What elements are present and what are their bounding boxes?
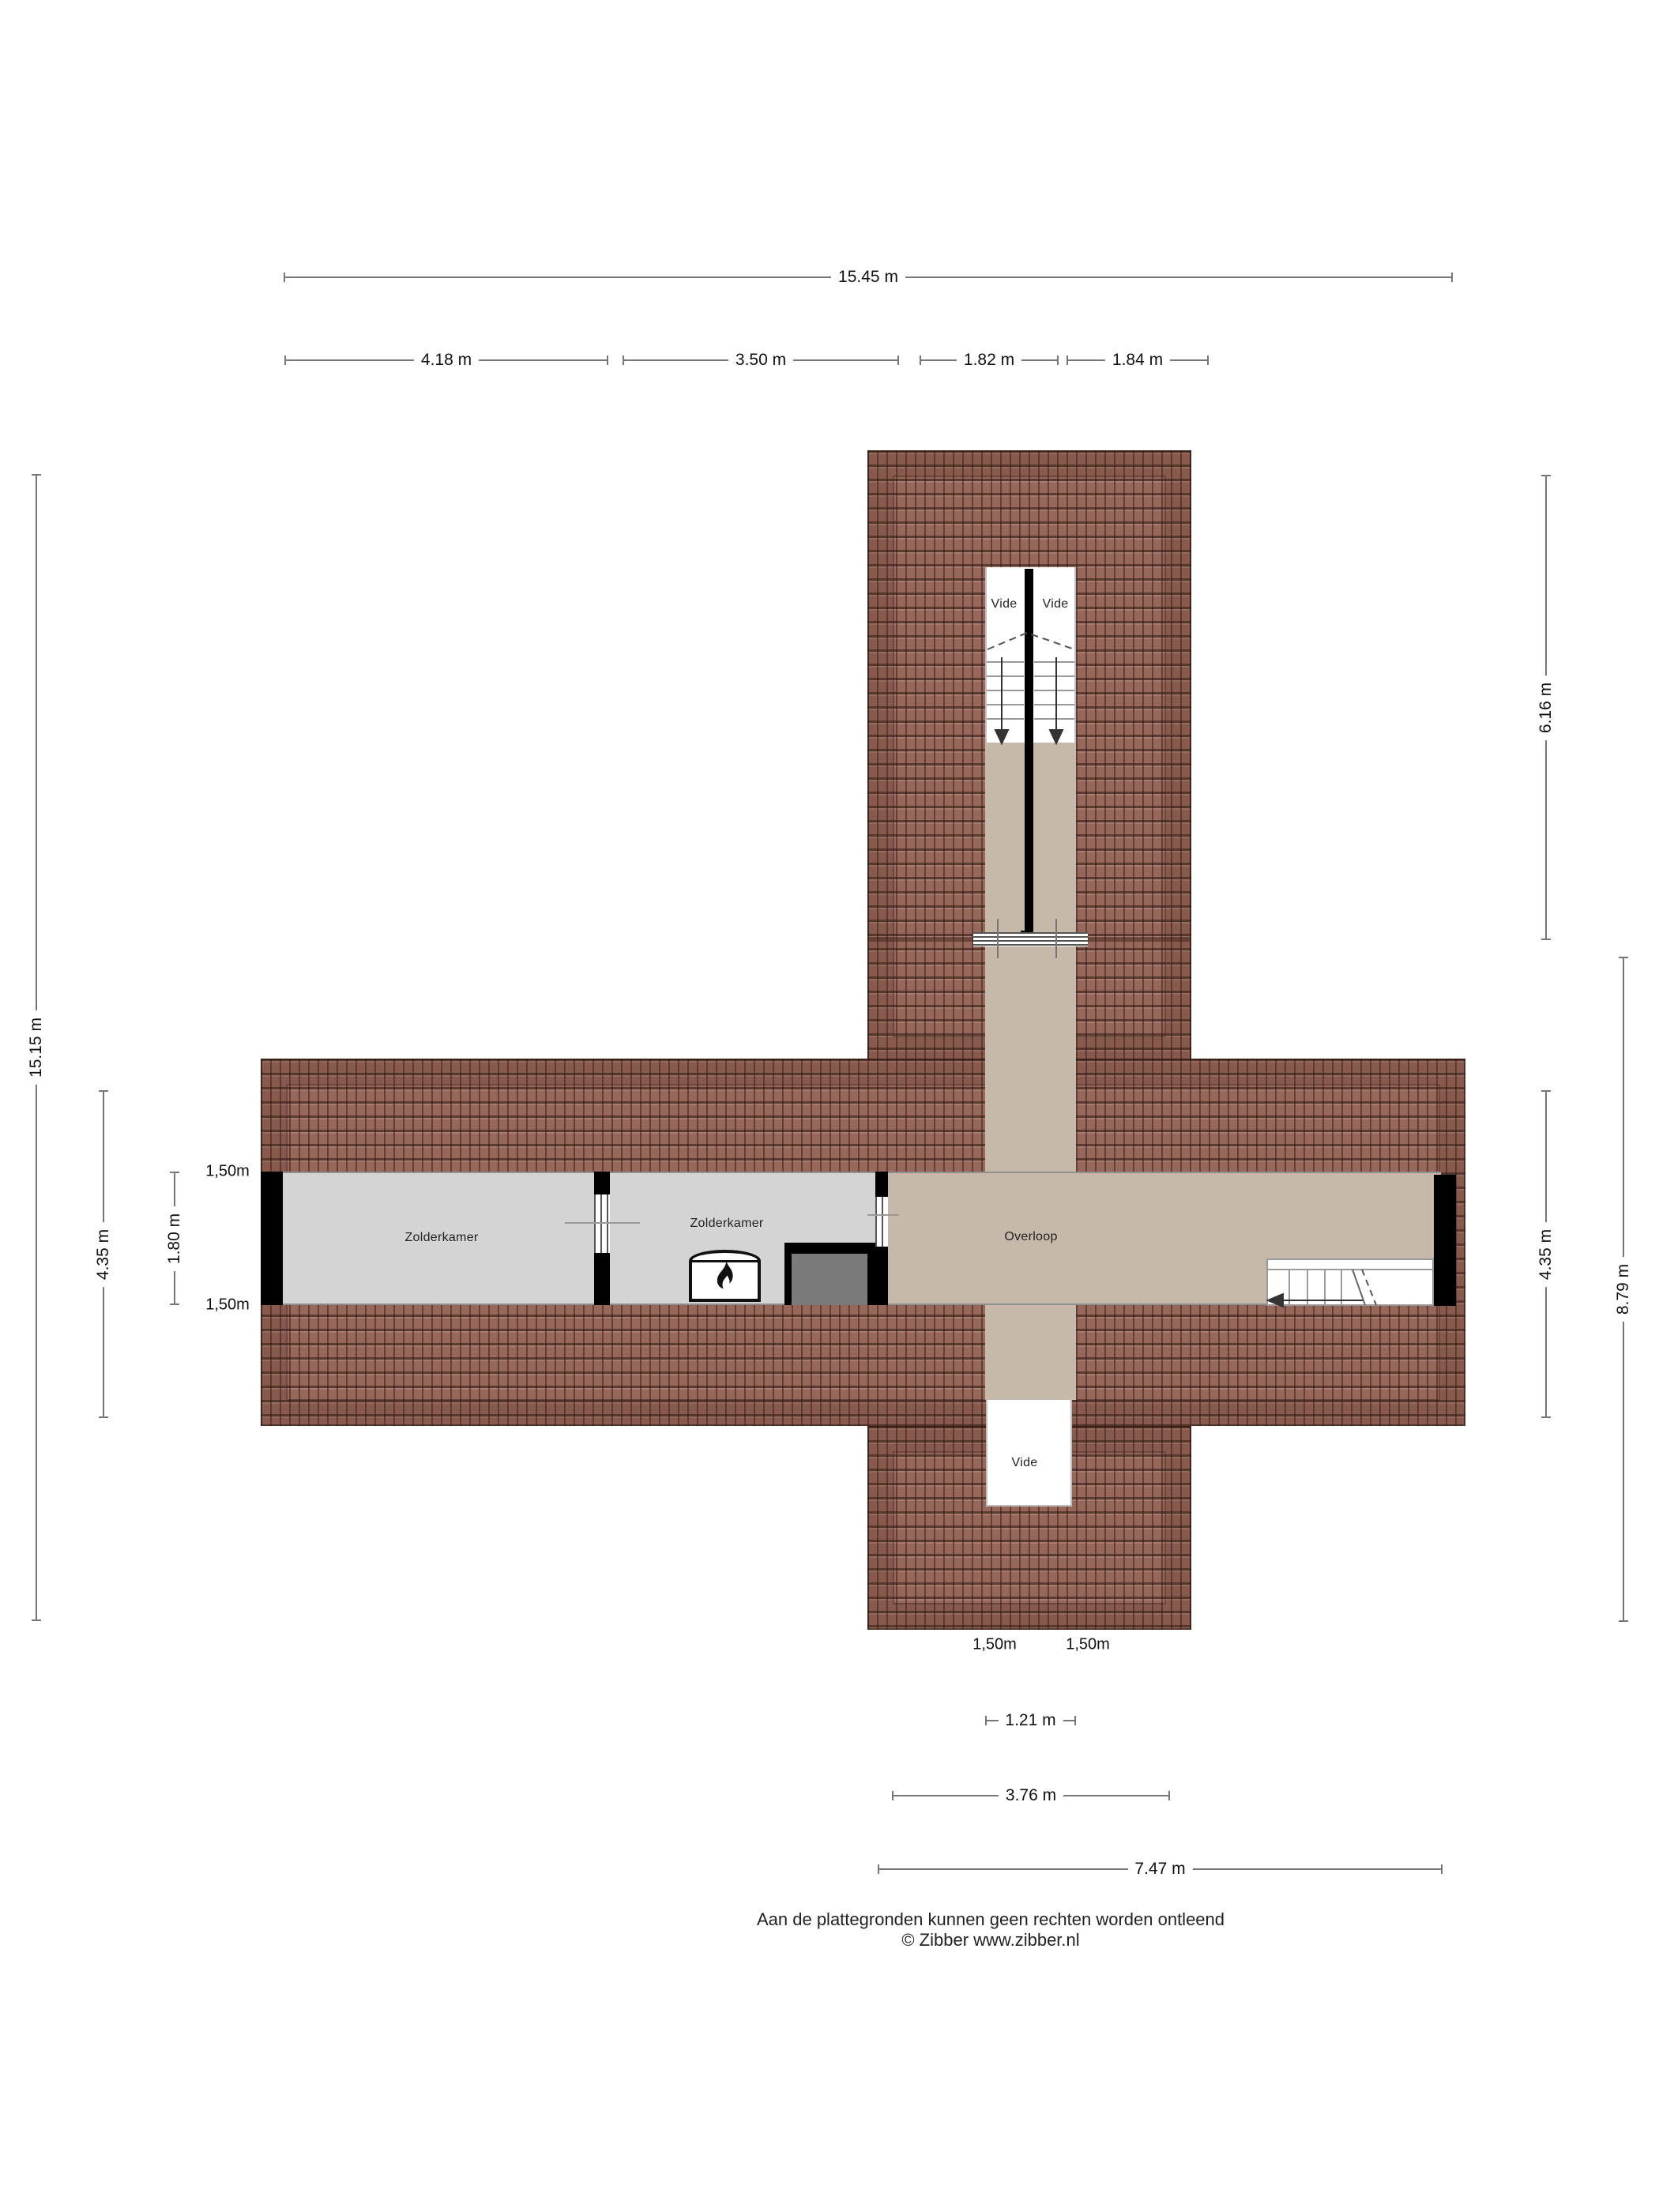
dim-right-total-label: 8.79 m [1614,1257,1633,1322]
room-label-overloop: Overloop [1004,1230,1057,1244]
height-line-label-left-bottom: 1,50m [205,1296,250,1315]
dim-right-top-label: 6.16 m [1537,675,1556,739]
floorplan-canvas: Zolderkamer Zolderkamer Overloop Vide Vi… [0,0,1659,2212]
copyright-text: © Zibber www.zibber.nl [901,1930,1079,1951]
height-line-label-bottom-left: 1,50m [972,1636,1017,1654]
vide-dashed-roofline [987,633,1074,649]
room-label-vide-top-left: Vide [991,597,1018,611]
dim-top-3-label: 1.82 m [957,351,1021,370]
dim-top-2-label: 3.50 m [728,351,793,370]
dim-top-4-label: 1.84 m [1105,351,1170,370]
dim-bottom-vide-label: 1.21 m [998,1711,1063,1730]
dim-bottom-vide: 1.21 m [985,1720,1076,1721]
plan-line-overlay [0,0,1659,2212]
dim-top-total-label: 15.45 m [831,268,905,287]
staircase-right-arrow [1268,1294,1363,1307]
dim-top-total: 15.45 m [284,276,1453,278]
dim-top-1-label: 4.18 m [414,351,479,370]
vide-stairs-treads [987,662,1074,719]
height-line-label-bottom-right: 1,50m [1066,1636,1110,1654]
dim-right-total: 8.79 m [1623,957,1624,1622]
stairs-down-arrows [995,657,1063,743]
dim-left-inner: 1.80 m [174,1172,175,1305]
dim-top-2: 3.50 m [623,359,899,361]
room-label-zolderkamer-right: Zolderkamer [690,1217,763,1231]
room-label-zolderkamer-left: Zolderkamer [404,1231,478,1245]
dim-top-3: 1.82 m [920,359,1059,361]
room-label-vide-bottom: Vide [1012,1456,1038,1470]
dim-bottom-wing-label: 3.76 m [999,1786,1063,1805]
dim-left-mid-label: 4.35 m [94,1221,113,1286]
dim-left-total-label: 15.15 m [27,1010,46,1085]
dim-bottom-total-label: 7.47 m [1127,1860,1192,1879]
dim-left-mid: 4.35 m [103,1090,104,1418]
dim-right-top: 6.16 m [1545,475,1547,940]
dim-left-inner-label: 1.80 m [165,1206,184,1270]
disclaimer-text: Aan de plattegronden kunnen geen rechten… [757,1909,1224,1930]
dim-right-mid-label: 4.35 m [1537,1221,1556,1286]
dim-bottom-wing: 3.76 m [892,1795,1170,1796]
dim-bottom-total: 7.47 m [878,1868,1443,1870]
dim-right-mid: 4.35 m [1545,1090,1547,1418]
dim-top-4: 1.84 m [1066,359,1209,361]
dim-left-total: 15.15 m [36,474,37,1621]
room-label-vide-top-right: Vide [1043,597,1069,611]
height-line-label-left-top: 1,50m [205,1163,250,1181]
dim-top-1: 4.18 m [284,359,608,361]
